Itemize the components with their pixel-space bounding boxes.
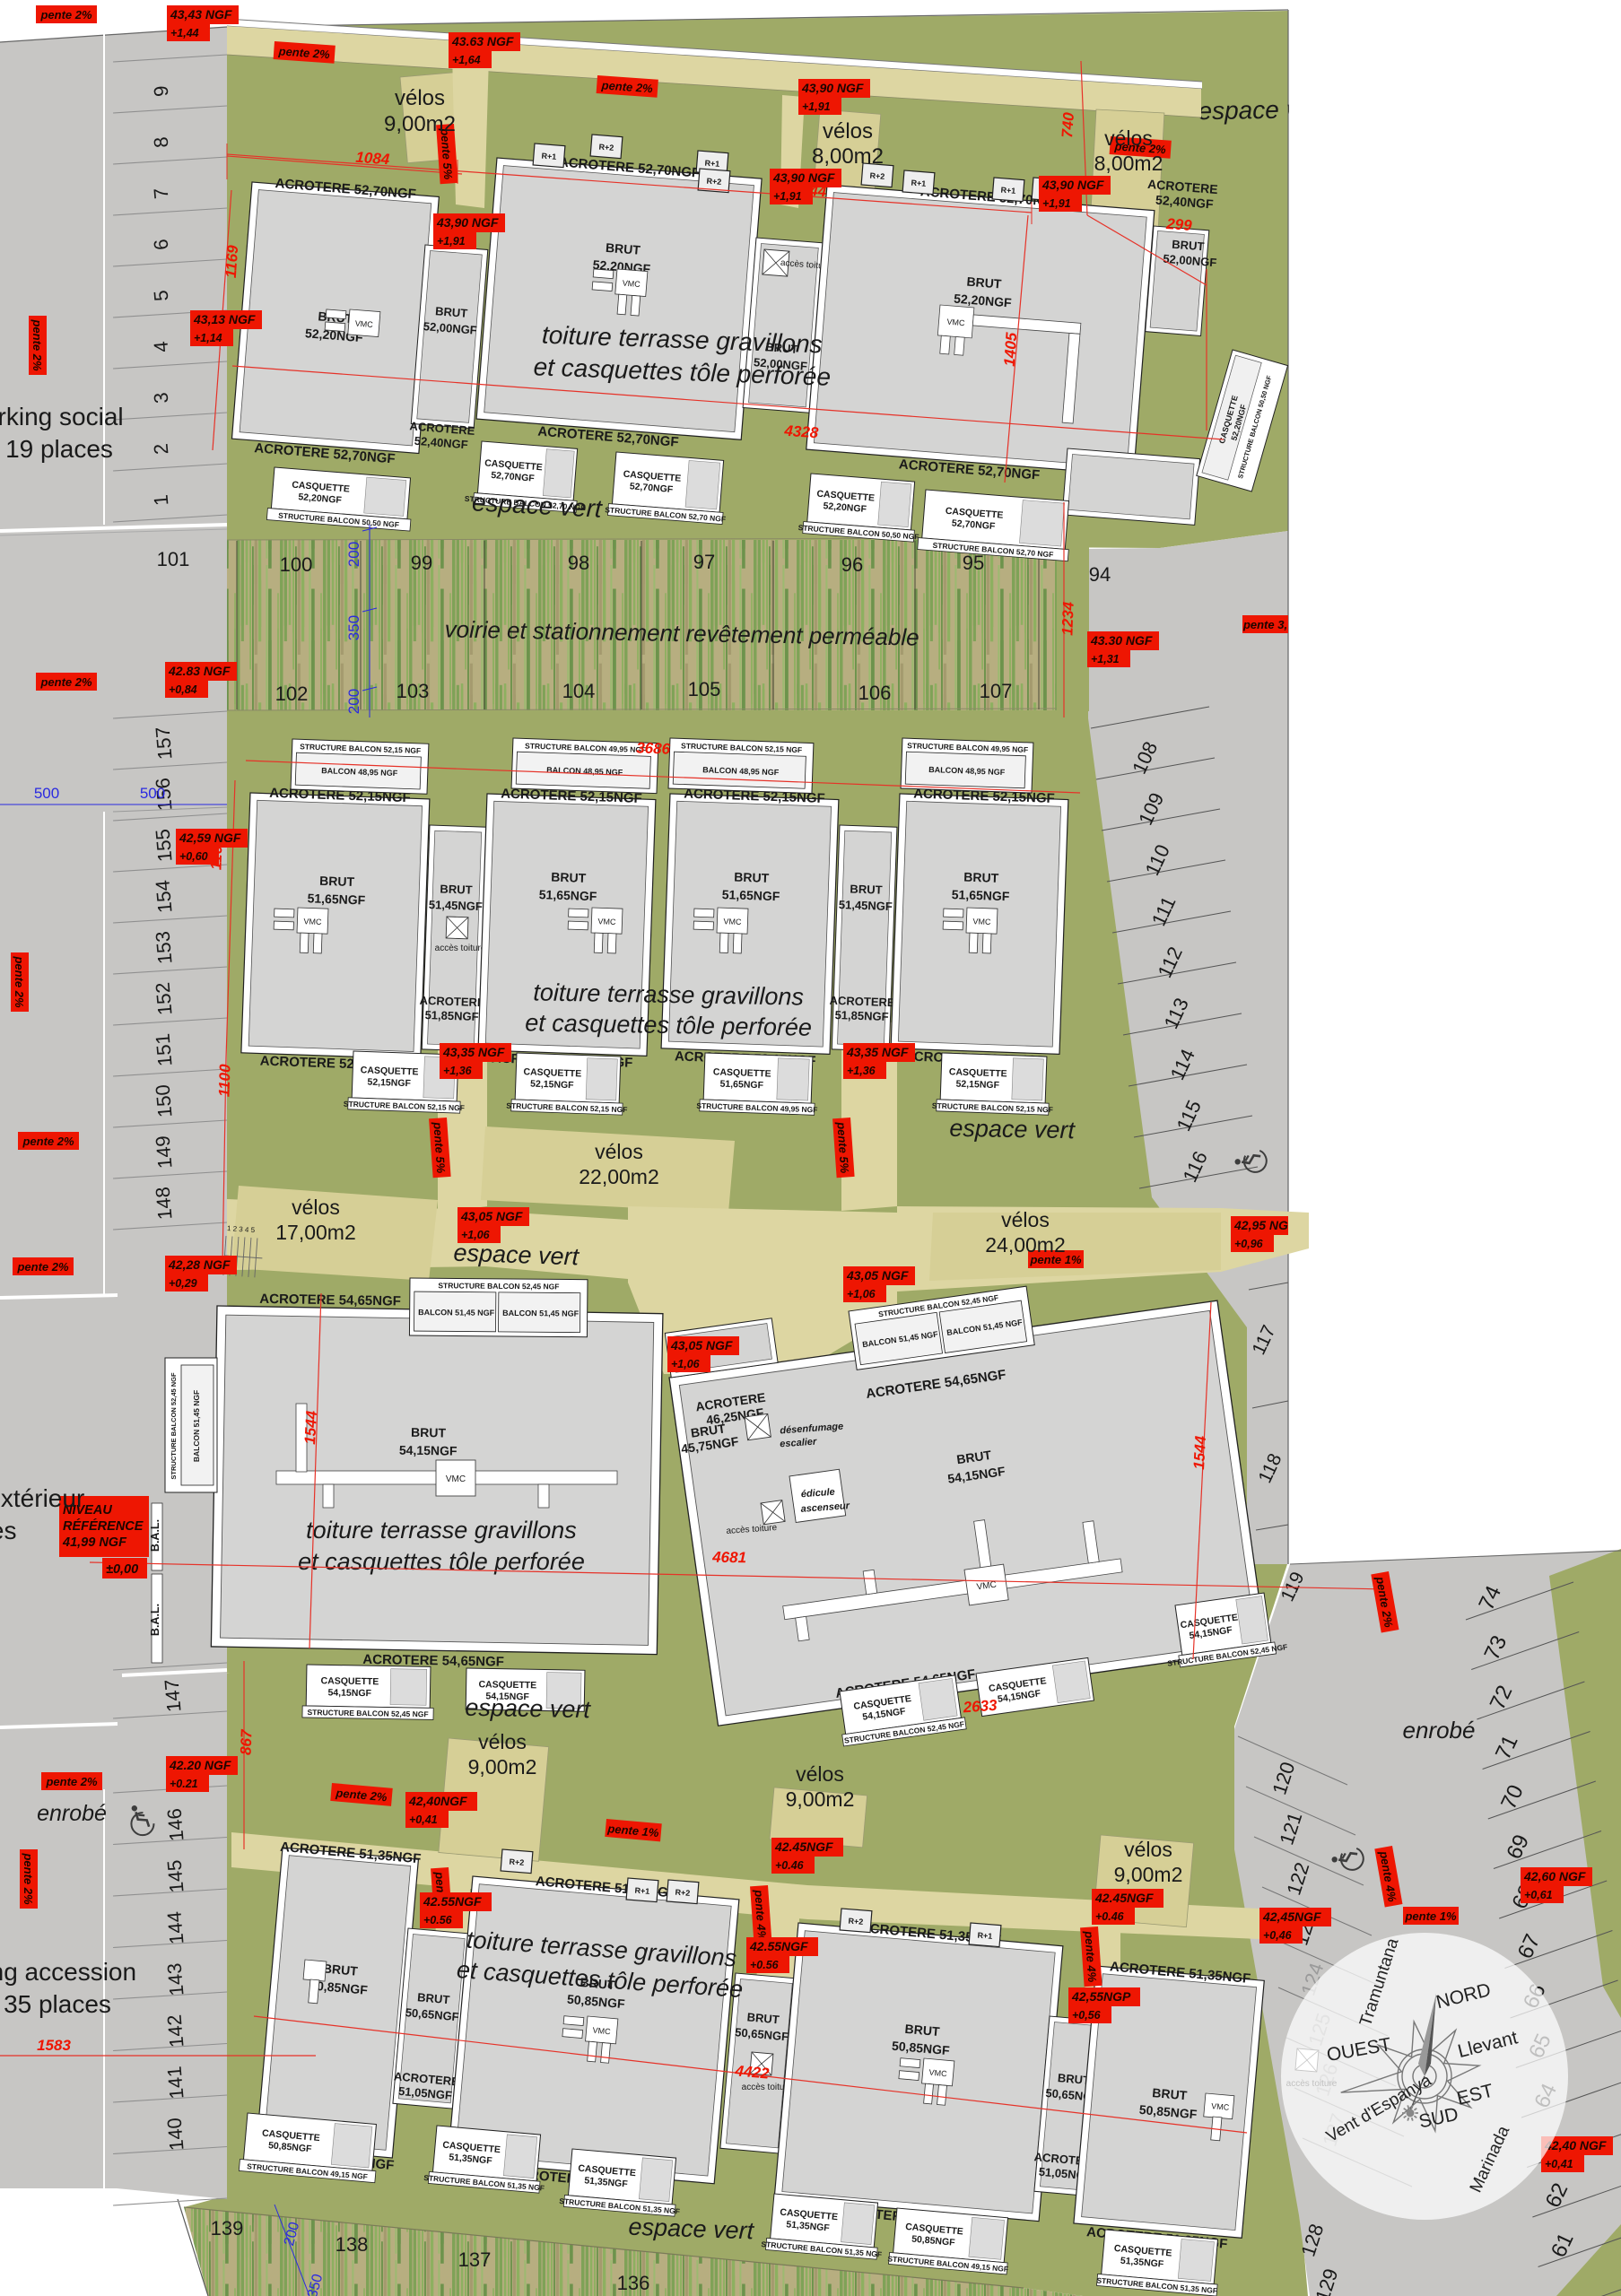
svg-text:parking social: parking social bbox=[0, 403, 124, 430]
svg-text:BRUT: BRUT bbox=[734, 870, 770, 885]
svg-text:BRUT: BRUT bbox=[411, 1425, 447, 1440]
svg-text:±0,00: ±0,00 bbox=[106, 1562, 138, 1577]
svg-text:BRUT: BRUT bbox=[551, 870, 587, 885]
svg-text:1405: 1405 bbox=[1001, 332, 1021, 368]
svg-text:VMC: VMC bbox=[946, 317, 965, 328]
svg-text:BALCON 51,45 NGF: BALCON 51,45 NGF bbox=[192, 1390, 201, 1462]
svg-text:137: 137 bbox=[458, 2248, 492, 2271]
svg-text:BALCON 51,45 NGF: BALCON 51,45 NGF bbox=[418, 1308, 495, 1318]
svg-text:8: 8 bbox=[150, 135, 173, 148]
svg-text:740: 740 bbox=[1059, 111, 1077, 138]
svg-text:138: 138 bbox=[336, 2233, 369, 2256]
svg-text:BRUT: BRUT bbox=[322, 1961, 359, 1978]
svg-text:B.A.L.: B.A.L. bbox=[149, 1519, 161, 1552]
svg-text:51,65NGF: 51,65NGF bbox=[719, 1079, 763, 1091]
svg-text:+1,91: +1,91 bbox=[802, 100, 831, 113]
svg-text:+1,36: +1,36 bbox=[847, 1065, 876, 1077]
svg-text:espace vert: espace vert bbox=[453, 1239, 580, 1271]
svg-text:99: 99 bbox=[411, 552, 432, 574]
svg-text:CASQUETTE: CASQUETTE bbox=[478, 1679, 536, 1691]
svg-text:51,45NGF: 51,45NGF bbox=[839, 898, 893, 913]
svg-text:43,90 NGF: 43,90 NGF bbox=[801, 81, 864, 95]
svg-text:105: 105 bbox=[688, 678, 721, 700]
svg-text:299: 299 bbox=[1165, 215, 1193, 234]
svg-text:vélos: vélos bbox=[595, 1140, 643, 1163]
svg-text:4: 4 bbox=[150, 340, 173, 352]
svg-text:3: 3 bbox=[150, 391, 173, 404]
svg-text:+1,91: +1,91 bbox=[437, 235, 466, 248]
svg-text:+1,36: +1,36 bbox=[443, 1065, 473, 1077]
svg-text:1544: 1544 bbox=[1190, 1435, 1209, 1470]
svg-text:9,00m2: 9,00m2 bbox=[1114, 1863, 1183, 1886]
svg-text:100: 100 bbox=[280, 553, 313, 576]
svg-text:42,45NGF: 42,45NGF bbox=[1262, 1909, 1321, 1924]
svg-text:R+1: R+1 bbox=[911, 178, 926, 188]
svg-text:500: 500 bbox=[140, 785, 165, 802]
svg-text:RÉFÉRENCE: RÉFÉRENCE bbox=[63, 1518, 144, 1534]
svg-text:43,90 NGF: 43,90 NGF bbox=[1041, 178, 1104, 192]
svg-text:51,65NGF: 51,65NGF bbox=[307, 891, 366, 907]
svg-text:vélos: vélos bbox=[395, 86, 445, 110]
svg-text:42,55NGP: 42,55NGP bbox=[1071, 1989, 1131, 2004]
svg-text:R+1: R+1 bbox=[977, 1931, 992, 1941]
svg-text:1084: 1084 bbox=[355, 149, 391, 169]
svg-text:1234: 1234 bbox=[1059, 601, 1076, 636]
svg-text:9,00m2: 9,00m2 bbox=[384, 112, 456, 136]
svg-text:147: 147 bbox=[160, 1678, 185, 1713]
svg-text:STRUCTURE BALCON 52,45 NGF: STRUCTURE BALCON 52,45 NGF bbox=[170, 1372, 178, 1480]
svg-text:35 places: 35 places bbox=[4, 1990, 111, 2018]
svg-text:9,00m2: 9,00m2 bbox=[468, 1755, 537, 1779]
svg-text:R+1: R+1 bbox=[634, 1886, 649, 1896]
svg-text:42.55NGF: 42.55NGF bbox=[749, 1939, 808, 1953]
svg-text:+1,31: +1,31 bbox=[1091, 653, 1120, 665]
svg-text:+0.46: +0.46 bbox=[1095, 1910, 1125, 1923]
svg-text:CASQUETTE: CASQUETTE bbox=[949, 1066, 1007, 1079]
svg-text:+0.46: +0.46 bbox=[775, 1859, 805, 1872]
svg-text:144: 144 bbox=[162, 1910, 187, 1945]
svg-text:ACROTERE 54,65NGF: ACROTERE 54,65NGF bbox=[259, 1291, 401, 1309]
svg-text:toiture terrasse gravillons: toiture terrasse gravillons bbox=[533, 978, 804, 1010]
svg-text:350: 350 bbox=[345, 615, 362, 640]
svg-text:CASQUETTE: CASQUETTE bbox=[320, 1675, 379, 1687]
svg-text:867: 867 bbox=[238, 1728, 256, 1756]
svg-text:VMC: VMC bbox=[1211, 2101, 1230, 2112]
svg-text:42,40NGF: 42,40NGF bbox=[408, 1794, 467, 1808]
svg-text:157: 157 bbox=[151, 726, 176, 761]
svg-text:+1,91: +1,91 bbox=[1042, 197, 1071, 210]
svg-text:+0,96: +0,96 bbox=[1234, 1238, 1264, 1250]
svg-text:140: 140 bbox=[162, 2117, 187, 2152]
svg-text:8,00m2: 8,00m2 bbox=[1094, 152, 1163, 175]
svg-text:51,85NGF: 51,85NGF bbox=[424, 1008, 479, 1023]
svg-text:42.45NGF: 42.45NGF bbox=[1094, 1891, 1154, 1905]
svg-text:43,35 NGF: 43,35 NGF bbox=[442, 1045, 505, 1059]
svg-text:pente 2%: pente 2% bbox=[31, 318, 44, 371]
svg-text:pente 3,: pente 3, bbox=[1242, 618, 1287, 631]
svg-text:9: 9 bbox=[150, 84, 173, 97]
svg-text:vélos: vélos bbox=[478, 1730, 527, 1753]
svg-text:+0,46: +0,46 bbox=[1263, 1929, 1293, 1942]
svg-text:pente 2%: pente 2% bbox=[13, 955, 26, 1008]
svg-text:BRUT: BRUT bbox=[963, 870, 999, 885]
svg-text:150: 150 bbox=[151, 1083, 176, 1118]
svg-text:7: 7 bbox=[150, 187, 173, 199]
svg-text:pente 2%: pente 2% bbox=[16, 1260, 69, 1274]
svg-text:43.63 NGF: 43.63 NGF bbox=[451, 34, 514, 48]
svg-text:43,43 NGF: 43,43 NGF bbox=[170, 7, 232, 22]
svg-text:52,15NGF: 52,15NGF bbox=[367, 1077, 411, 1090]
svg-text:51,65NGF: 51,65NGF bbox=[722, 887, 781, 903]
svg-text:42,59 NGF: 42,59 NGF bbox=[179, 831, 241, 845]
svg-text:pente 2%: pente 2% bbox=[22, 1852, 35, 1905]
svg-text:101: 101 bbox=[157, 548, 190, 570]
svg-text:vélos: vélos bbox=[1001, 1208, 1050, 1231]
svg-text:R+2: R+2 bbox=[848, 1917, 863, 1926]
svg-text:vélos: vélos bbox=[292, 1196, 340, 1219]
svg-text:96: 96 bbox=[841, 553, 863, 576]
svg-text:8,00m2: 8,00m2 bbox=[812, 144, 884, 169]
svg-text:6: 6 bbox=[150, 238, 173, 250]
svg-text:R+2: R+2 bbox=[869, 171, 885, 181]
svg-text:B.A.L.: B.A.L. bbox=[149, 1604, 161, 1636]
svg-text:1100: 1100 bbox=[215, 1064, 233, 1098]
svg-text:51,65NGF: 51,65NGF bbox=[539, 887, 598, 903]
svg-text:43.30 NGF: 43.30 NGF bbox=[1090, 633, 1153, 648]
svg-text:R+1: R+1 bbox=[541, 152, 556, 161]
svg-text:BRUT: BRUT bbox=[1172, 238, 1205, 254]
svg-text:200: 200 bbox=[345, 542, 362, 567]
svg-text:52,15NGF: 52,15NGF bbox=[530, 1079, 574, 1091]
svg-text:VMC: VMC bbox=[622, 279, 641, 290]
svg-text:enrobé: enrobé bbox=[1403, 1717, 1476, 1744]
svg-text:VMC: VMC bbox=[723, 917, 742, 926]
svg-text:19 places: 19 places bbox=[5, 435, 113, 463]
svg-text:2: 2 bbox=[150, 442, 173, 455]
svg-text:ACROTERE: ACROTERE bbox=[829, 994, 895, 1010]
svg-text:22,00m2: 22,00m2 bbox=[579, 1165, 659, 1188]
svg-text:43,90 NGF: 43,90 NGF bbox=[436, 215, 499, 230]
svg-text:vélos: vélos bbox=[1124, 1838, 1172, 1861]
svg-text:54,15NGF: 54,15NGF bbox=[327, 1687, 371, 1699]
svg-text:17,00m2: 17,00m2 bbox=[275, 1221, 356, 1244]
svg-text:R+2: R+2 bbox=[706, 177, 721, 187]
svg-text:98: 98 bbox=[568, 552, 589, 574]
svg-text:parking extérieur: parking extérieur bbox=[0, 1484, 84, 1512]
svg-text:et casquettes tôle perforée: et casquettes tôle perforée bbox=[298, 1548, 585, 1575]
svg-text:4328: 4328 bbox=[783, 422, 820, 442]
svg-text:43,90 NGF: 43,90 NGF bbox=[772, 170, 835, 185]
svg-text:places: places bbox=[0, 1517, 16, 1544]
svg-text:41,99 NGF: 41,99 NGF bbox=[62, 1535, 127, 1550]
svg-text:43,05 NGF: 43,05 NGF bbox=[670, 1338, 733, 1352]
svg-text:+0.21: +0.21 bbox=[170, 1778, 198, 1790]
svg-text:104: 104 bbox=[562, 680, 596, 702]
svg-text:CASQUETTE: CASQUETTE bbox=[523, 1066, 581, 1079]
svg-text:54,15NGF: 54,15NGF bbox=[399, 1443, 458, 1458]
svg-text:et casquettes tôle perforée: et casquettes tôle perforée bbox=[525, 1009, 812, 1041]
svg-text:BRUT: BRUT bbox=[417, 1990, 450, 2006]
svg-text:1544: 1544 bbox=[301, 1410, 320, 1445]
svg-text:BRUT: BRUT bbox=[605, 240, 641, 257]
svg-text:pente 2%: pente 2% bbox=[39, 675, 92, 689]
svg-text:vélos: vélos bbox=[1104, 126, 1153, 150]
svg-text:+0,84: +0,84 bbox=[169, 683, 197, 696]
svg-text:CASQUETTE: CASQUETTE bbox=[713, 1066, 771, 1079]
svg-text:142: 142 bbox=[162, 2013, 187, 2048]
svg-text:pente 2%: pente 2% bbox=[22, 1135, 74, 1148]
svg-text:R+1: R+1 bbox=[704, 159, 719, 169]
svg-text:42,40 NGF: 42,40 NGF bbox=[1544, 2138, 1607, 2152]
svg-text:accès toiture: accès toiture bbox=[435, 944, 486, 953]
svg-text:42,60 NGF: 42,60 NGF bbox=[1523, 1869, 1586, 1883]
svg-text:42.20 NGF: 42.20 NGF bbox=[169, 1758, 231, 1772]
svg-text:BRUT: BRUT bbox=[966, 274, 1002, 291]
svg-text:1583: 1583 bbox=[37, 2037, 71, 2054]
svg-text:42,28 NGF: 42,28 NGF bbox=[168, 1257, 231, 1272]
svg-text:+1,14: +1,14 bbox=[194, 332, 222, 344]
svg-text:VMC: VMC bbox=[354, 319, 373, 330]
svg-text:153: 153 bbox=[151, 930, 176, 965]
svg-text:espace vert: espace vert bbox=[628, 2213, 755, 2245]
svg-text:43,05 NGF: 43,05 NGF bbox=[460, 1209, 523, 1223]
svg-text:9,00m2: 9,00m2 bbox=[786, 1787, 855, 1811]
svg-text:155: 155 bbox=[151, 828, 176, 863]
svg-text:+0,61: +0,61 bbox=[1524, 1889, 1553, 1901]
svg-text:parking accession: parking accession bbox=[0, 1958, 136, 1986]
svg-text:1: 1 bbox=[150, 493, 173, 506]
svg-text:BRUT: BRUT bbox=[1152, 2085, 1189, 2102]
svg-text:VMC: VMC bbox=[592, 2026, 611, 2037]
svg-text:141: 141 bbox=[162, 2066, 187, 2100]
svg-text:102: 102 bbox=[275, 683, 309, 705]
svg-text:149: 149 bbox=[151, 1135, 176, 1170]
svg-text:95: 95 bbox=[963, 552, 984, 574]
svg-text:VMC: VMC bbox=[303, 917, 322, 926]
svg-text:vélos: vélos bbox=[796, 1762, 844, 1786]
svg-text:+1,64: +1,64 bbox=[452, 54, 481, 66]
svg-text:CASQUETTE: CASQUETTE bbox=[361, 1065, 419, 1077]
svg-text:BRUT: BRUT bbox=[904, 2022, 941, 2039]
svg-text:154: 154 bbox=[151, 879, 176, 914]
svg-text:+1,06: +1,06 bbox=[847, 1288, 876, 1300]
svg-text:+0,56: +0,56 bbox=[1072, 2009, 1102, 2022]
svg-text:152: 152 bbox=[151, 981, 176, 1016]
svg-text:1169: 1169 bbox=[222, 244, 242, 278]
svg-text:200: 200 bbox=[345, 689, 362, 714]
svg-text:enrobé: enrobé bbox=[37, 1801, 107, 1826]
svg-text:43,13 NGF: 43,13 NGF bbox=[193, 312, 256, 326]
svg-text:103: 103 bbox=[397, 680, 430, 702]
svg-text:43,35 NGF: 43,35 NGF bbox=[846, 1045, 909, 1059]
svg-text:42.55NGF: 42.55NGF bbox=[423, 1894, 482, 1909]
svg-text:145: 145 bbox=[162, 1859, 187, 1894]
svg-text:pente 2%: pente 2% bbox=[45, 1775, 98, 1788]
svg-text:106: 106 bbox=[858, 682, 892, 704]
svg-text:136: 136 bbox=[617, 2272, 650, 2294]
svg-text:BALCON 51,45 NGF: BALCON 51,45 NGF bbox=[502, 1309, 580, 1318]
svg-text:BRUT: BRUT bbox=[440, 882, 473, 896]
svg-text:51,85NGF: 51,85NGF bbox=[834, 1008, 889, 1023]
svg-text:+1,44: +1,44 bbox=[170, 27, 199, 39]
svg-text:STRUCTURE BALCON 52,45 NGF: STRUCTURE BALCON 52,45 NGF bbox=[438, 1281, 559, 1291]
svg-text:51,45NGF: 51,45NGF bbox=[429, 898, 484, 913]
svg-text:94: 94 bbox=[1089, 563, 1111, 586]
svg-text:42,95 NG: 42,95 NG bbox=[1233, 1218, 1288, 1232]
svg-text:42.83 NGF: 42.83 NGF bbox=[168, 664, 231, 678]
svg-text:pente 1%: pente 1% bbox=[1404, 1909, 1457, 1923]
svg-text:VMC: VMC bbox=[928, 2068, 947, 2079]
svg-text:4422: 4422 bbox=[734, 2062, 771, 2082]
svg-text:4681: 4681 bbox=[711, 1549, 746, 1567]
svg-text:R+2: R+2 bbox=[675, 1888, 690, 1898]
svg-text:+1,91: +1,91 bbox=[773, 190, 802, 203]
svg-text:+0,60: +0,60 bbox=[179, 850, 208, 863]
svg-text:139: 139 bbox=[211, 2217, 244, 2239]
svg-text:2633: 2633 bbox=[962, 1697, 998, 1717]
svg-text:pente 2%: pente 2% bbox=[39, 8, 92, 22]
svg-text:42.45NGF: 42.45NGF bbox=[774, 1839, 833, 1854]
svg-text:51,65NGF: 51,65NGF bbox=[952, 887, 1011, 903]
svg-text:5: 5 bbox=[150, 289, 173, 301]
svg-text:43,05 NGF: 43,05 NGF bbox=[846, 1268, 909, 1283]
svg-text:R+1: R+1 bbox=[1000, 186, 1015, 196]
svg-text:VMC: VMC bbox=[972, 917, 991, 926]
svg-text:VMC: VMC bbox=[446, 1474, 466, 1484]
svg-text:+0.56: +0.56 bbox=[423, 1914, 453, 1926]
svg-text:espace vert: espace vert bbox=[949, 1115, 1076, 1144]
svg-text:toiture terrasse gravillons: toiture terrasse gravillons bbox=[306, 1517, 577, 1544]
svg-text:BRUT: BRUT bbox=[435, 304, 468, 320]
svg-text:BRUT: BRUT bbox=[746, 2010, 780, 2026]
svg-text:52,15NGF: 52,15NGF bbox=[955, 1079, 999, 1091]
svg-text:ACROTERE: ACROTERE bbox=[419, 994, 485, 1010]
svg-text:107: 107 bbox=[980, 680, 1013, 702]
svg-text:3686: 3686 bbox=[636, 739, 671, 757]
svg-text:500: 500 bbox=[34, 785, 59, 802]
svg-text:24,00m2: 24,00m2 bbox=[985, 1233, 1066, 1257]
svg-text:146: 146 bbox=[162, 1807, 187, 1842]
svg-text:R+2: R+2 bbox=[509, 1857, 524, 1867]
svg-text:BRUT: BRUT bbox=[319, 874, 355, 889]
svg-text:+1,06: +1,06 bbox=[671, 1358, 701, 1370]
svg-text:+0,29: +0,29 bbox=[169, 1277, 197, 1290]
svg-text:vélos: vélos bbox=[823, 119, 873, 143]
svg-text:espace vert: espace vert bbox=[465, 1694, 592, 1723]
svg-text:97: 97 bbox=[693, 551, 715, 573]
svg-text:+0,41: +0,41 bbox=[1545, 2158, 1573, 2170]
svg-text:VMC: VMC bbox=[597, 917, 616, 926]
svg-text:+0,41: +0,41 bbox=[409, 1813, 438, 1826]
svg-text:143: 143 bbox=[162, 1962, 187, 1997]
svg-text:+0.56: +0.56 bbox=[750, 1959, 780, 1971]
svg-text:148: 148 bbox=[151, 1186, 176, 1221]
svg-text:R+2: R+2 bbox=[598, 143, 614, 152]
svg-text:BRUT: BRUT bbox=[850, 882, 883, 896]
svg-text:151: 151 bbox=[151, 1032, 176, 1067]
